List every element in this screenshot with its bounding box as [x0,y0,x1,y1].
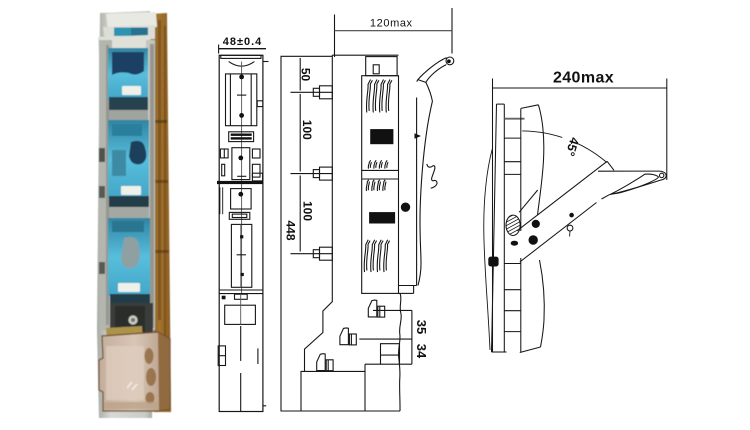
svg-text:48±0.4: 48±0.4 [223,36,263,48]
svg-text:100: 100 [300,120,314,140]
svg-text:35: 35 [414,320,429,334]
svg-text:100: 100 [301,201,315,221]
svg-text:448: 448 [284,220,298,240]
svg-text:50: 50 [299,68,313,82]
svg-text:240max: 240max [553,70,614,87]
svg-text:120max: 120max [370,18,413,30]
svg-text:34: 34 [414,344,429,359]
